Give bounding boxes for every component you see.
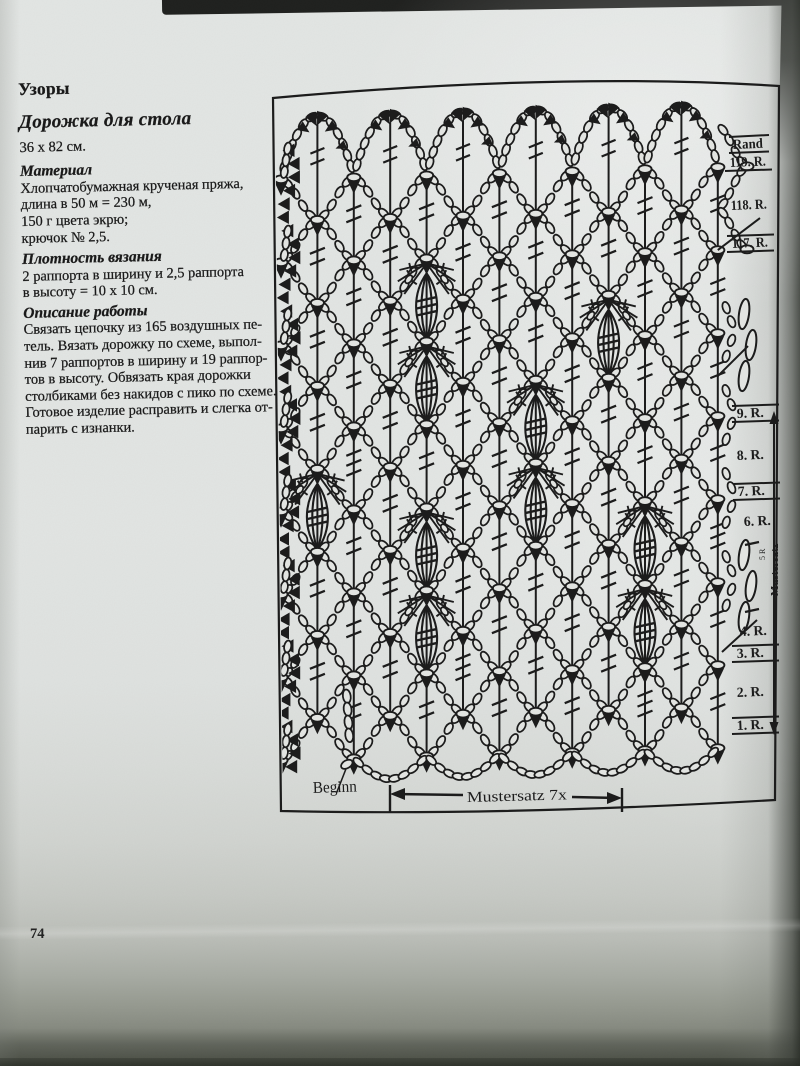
svg-text:2. R.: 2. R. — [737, 685, 765, 701]
svg-text:8. R.: 8. R. — [737, 448, 765, 464]
svg-text:118. R.: 118. R. — [731, 197, 768, 214]
svg-text:Rand: Rand — [733, 137, 764, 153]
svg-text:4. R.: 4. R. — [740, 624, 768, 640]
svg-text:5 R: 5 R — [758, 548, 767, 560]
svg-text:Mustersatz: Mustersatz — [769, 543, 781, 596]
svg-text:Mustersatz 7x: Mustersatz 7x — [467, 787, 568, 806]
svg-text:119. R.: 119. R. — [730, 154, 767, 171]
svg-text:9. R.: 9. R. — [737, 406, 765, 422]
svg-text:Beginn: Beginn — [312, 776, 357, 797]
svg-text:3. R.: 3. R. — [737, 646, 765, 662]
svg-text:6. R.: 6. R. — [744, 514, 772, 530]
svg-text:7. R.: 7. R. — [738, 484, 766, 500]
svg-text:1. R.: 1. R. — [737, 718, 765, 734]
svg-text:117. R.: 117. R. — [732, 235, 769, 252]
